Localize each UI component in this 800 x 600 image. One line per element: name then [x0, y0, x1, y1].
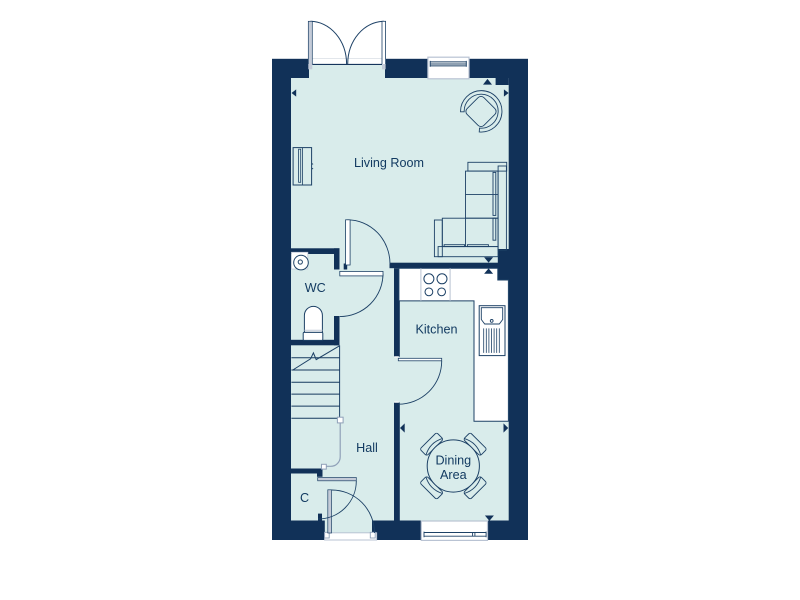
svg-text:Hall: Hall	[356, 441, 378, 455]
svg-text:Area: Area	[440, 468, 467, 482]
svg-text:C: C	[300, 491, 309, 505]
svg-text:Living Room: Living Room	[354, 156, 424, 170]
svg-text:Kitchen: Kitchen	[415, 322, 457, 336]
svg-text:Dining: Dining	[435, 453, 471, 467]
svg-text:WC: WC	[305, 281, 326, 295]
